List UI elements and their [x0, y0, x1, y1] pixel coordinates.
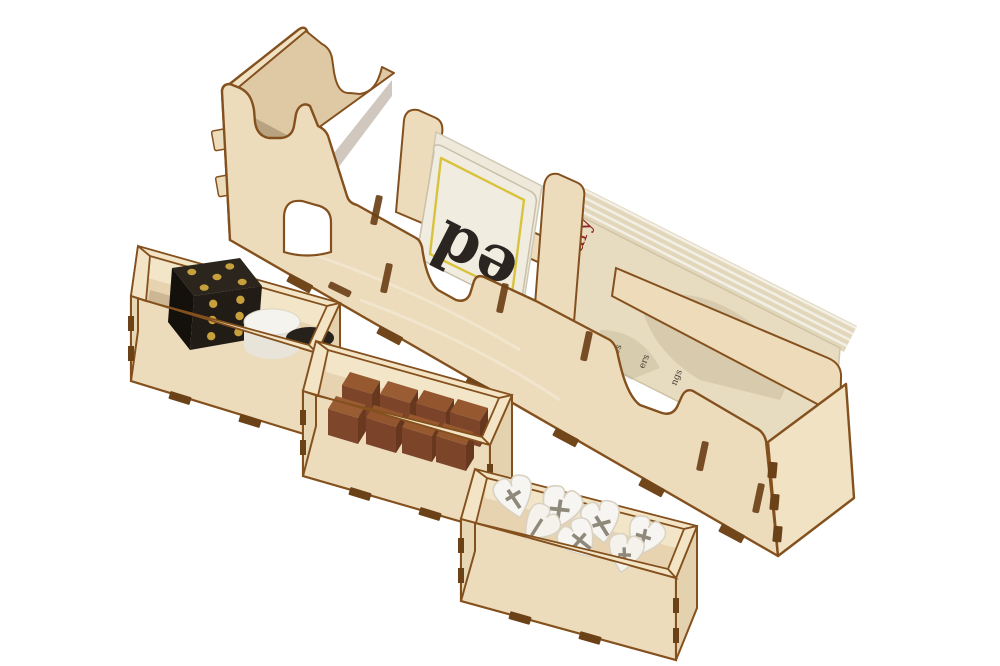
bay-divider-2: [534, 174, 584, 322]
scene: ed mary P es ers ngs: [0, 0, 1000, 666]
token-tray: [458, 469, 697, 660]
product-photo: ed mary P es ers ngs: [0, 0, 1000, 666]
arch-cutout: [284, 201, 331, 256]
